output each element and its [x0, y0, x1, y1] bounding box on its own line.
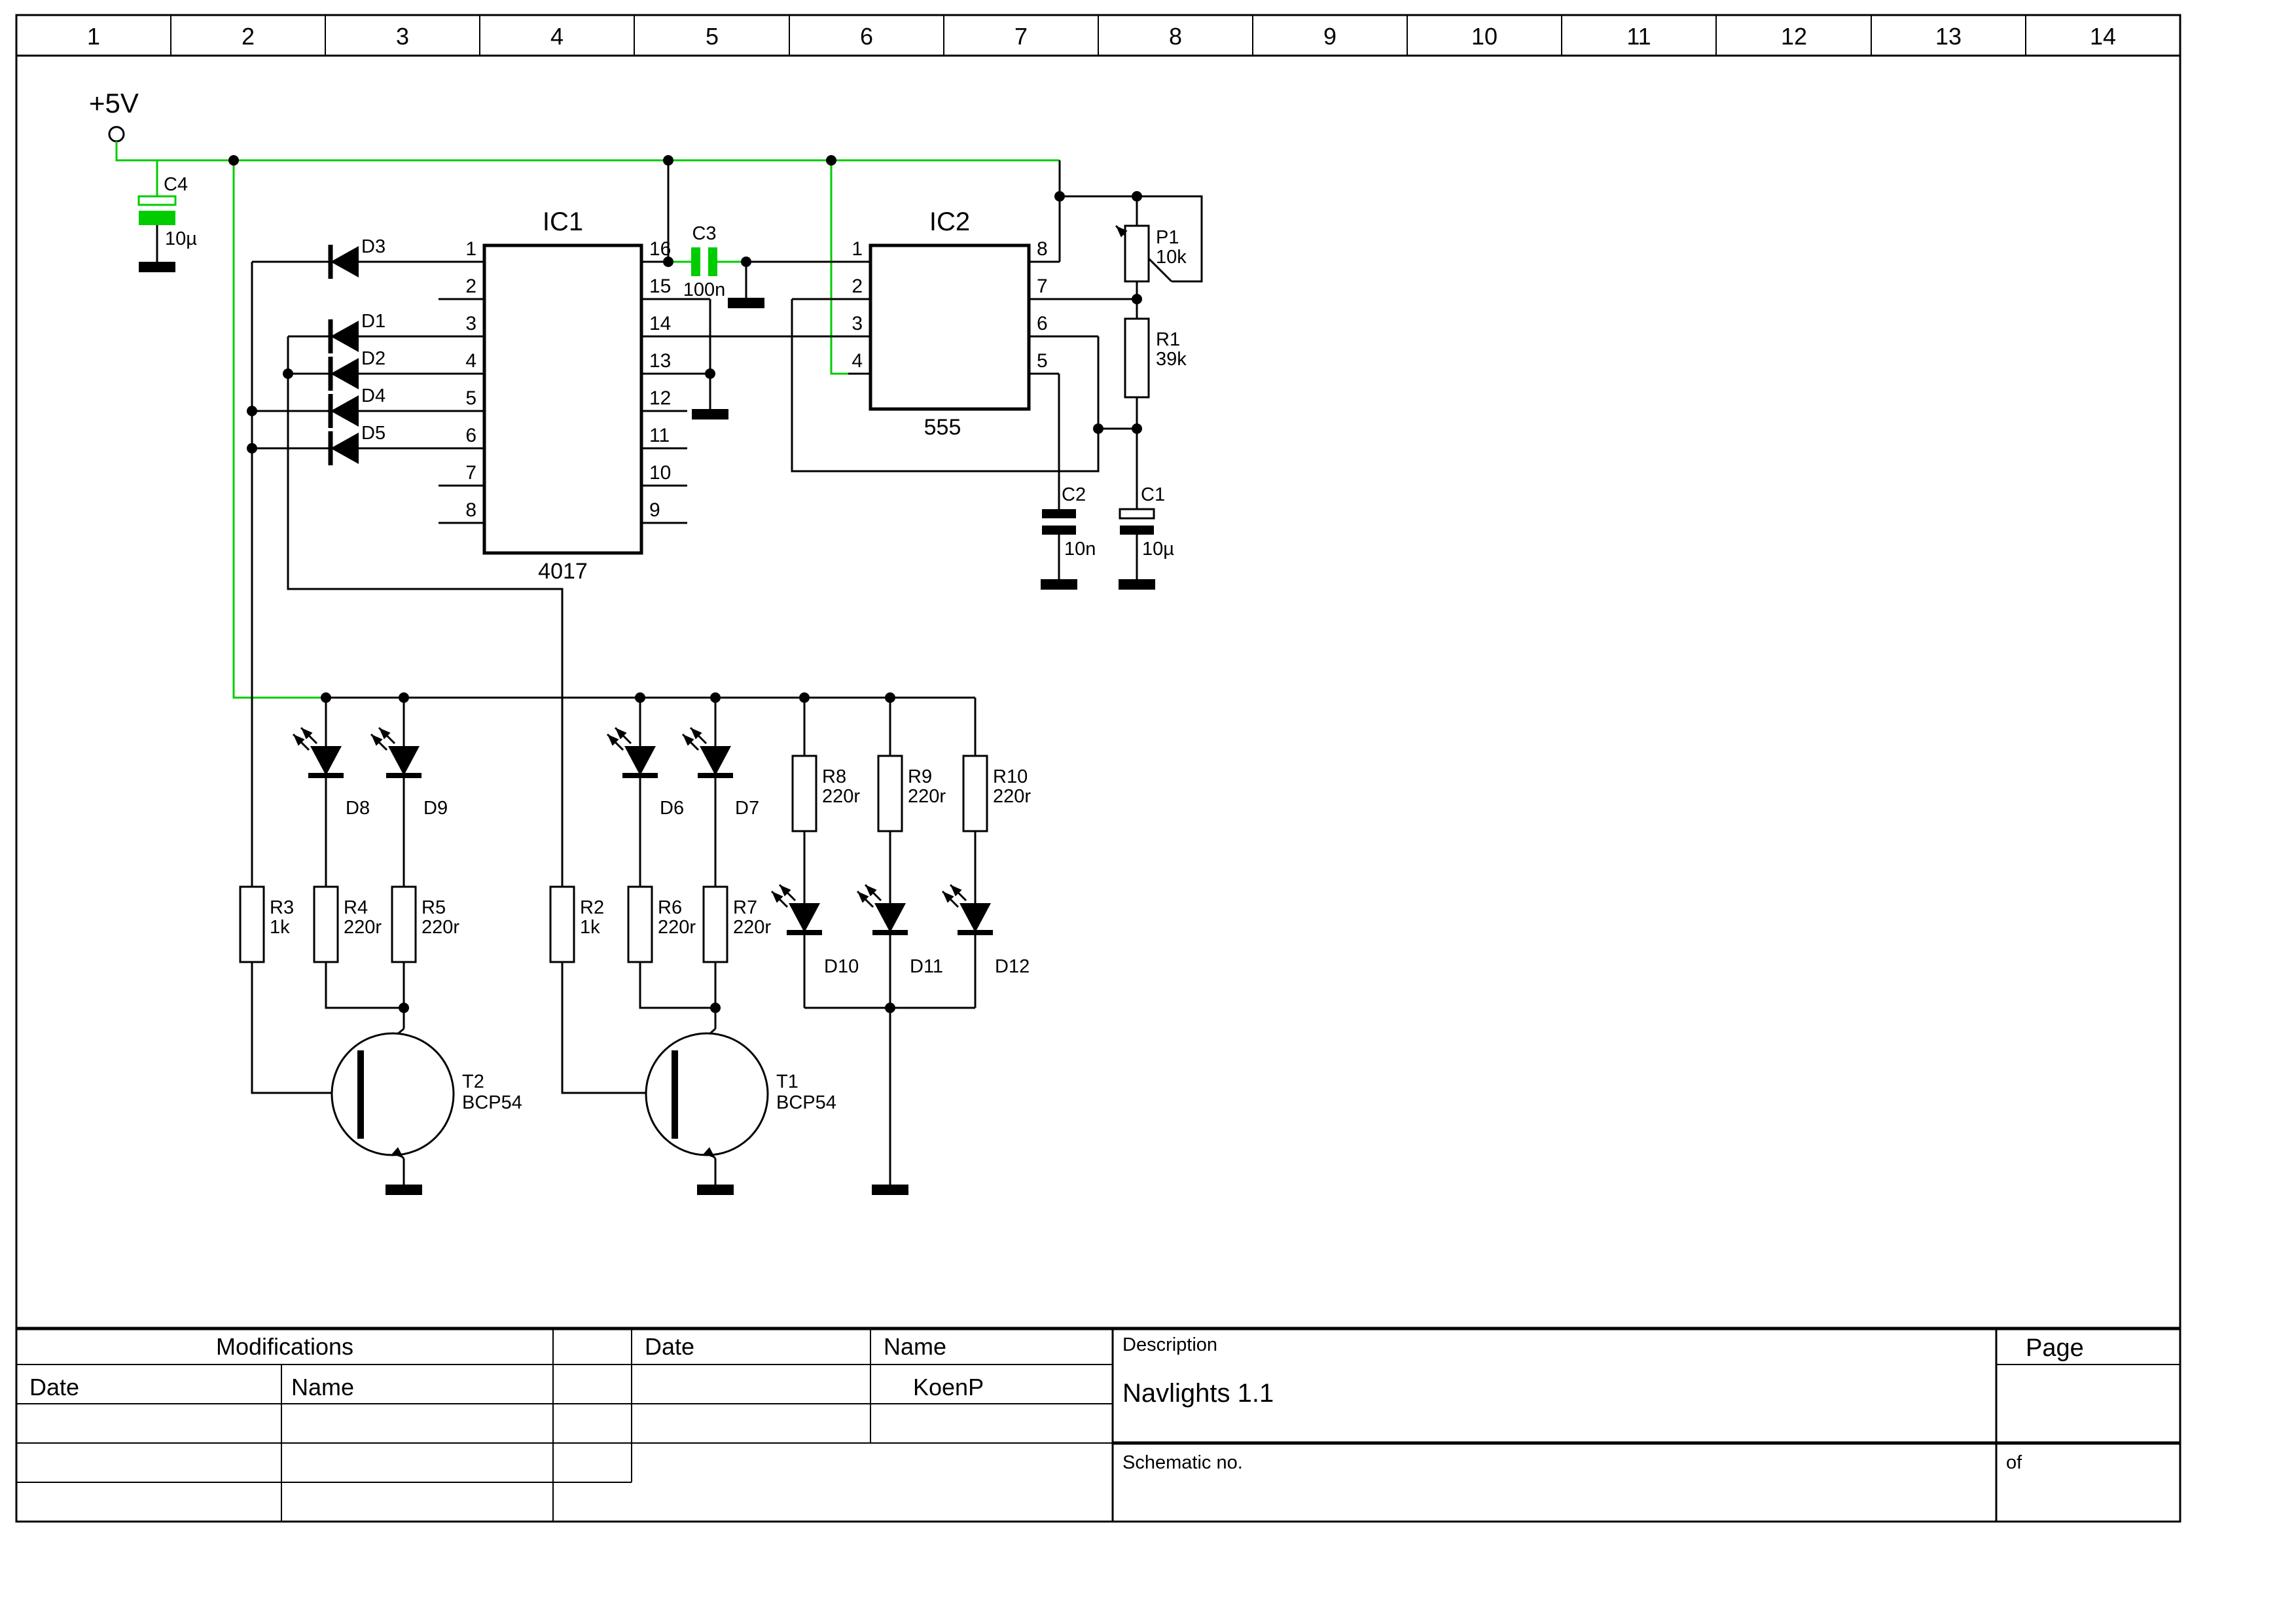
ruler-label: 3 [396, 23, 409, 50]
diode-d4: D4 [331, 385, 386, 427]
ic1-pin: 8 [465, 499, 476, 521]
led-d7: D7 [683, 728, 759, 819]
of-label: of [2006, 1452, 2022, 1473]
name-header: Name [884, 1333, 946, 1360]
transistor-base-bar [357, 1050, 364, 1139]
res-value: 220r [993, 786, 1031, 807]
ruler-label: 4 [550, 23, 564, 50]
cap-value: 100n [683, 279, 726, 300]
cap-ref: C4 [164, 174, 188, 195]
ic1-pin: 7 [465, 462, 476, 484]
res-ref: R2 [580, 897, 604, 918]
res-ref: R5 [422, 897, 446, 918]
ic2-555: IC2 555 1 2 3 4 8 7 6 5 [852, 207, 1047, 440]
ic2-pin: 1 [852, 238, 863, 260]
date-label: Date [29, 1374, 79, 1400]
transistor-part: BCP54 [462, 1092, 522, 1113]
led-d11: D11 [857, 885, 943, 977]
ground-icon [872, 1185, 908, 1195]
ic2-pin: 3 [852, 313, 863, 334]
res-value: 220r [344, 917, 382, 938]
ic1-pin: 12 [649, 387, 671, 409]
potentiometer-p1: P1 10k [1116, 226, 1187, 281]
ruler-label: 14 [2090, 23, 2116, 50]
ic1-pin: 11 [649, 425, 670, 446]
ruler-label: 11 [1626, 23, 1651, 50]
diode-d3: D3 [331, 236, 386, 279]
ruler-label: 6 [860, 23, 873, 50]
res-ref: R6 [658, 897, 682, 918]
cap-plate [708, 247, 717, 276]
power-terminal: +5V [89, 88, 139, 141]
ruler-label: 7 [1014, 23, 1028, 50]
ic1-body [484, 245, 641, 553]
modifications-header: Modifications [216, 1333, 353, 1360]
cap-plate [1042, 526, 1076, 535]
cap-plate [691, 247, 700, 276]
ic1-pin: 14 [649, 313, 671, 334]
res-ref: R10 [993, 766, 1028, 787]
ic1-pin: 4 [465, 350, 476, 372]
led-d10: D10 [772, 885, 859, 977]
cap-ref: C2 [1062, 484, 1086, 505]
schematic-title: Navlights 1.1 [1122, 1379, 1274, 1408]
led-d12: D12 [942, 885, 1030, 977]
res-value: 1k [270, 917, 290, 938]
ruler-label: 13 [1935, 23, 1962, 50]
column-ruler: 1 2 3 4 5 6 7 8 9 10 11 12 13 14 [87, 15, 2116, 56]
transistor-ref: T2 [462, 1071, 484, 1092]
res-value: 39k [1156, 349, 1187, 370]
res-value: 220r [658, 917, 696, 938]
ic2-pin: 5 [1037, 350, 1048, 372]
pot-ref: P1 [1156, 227, 1179, 248]
cap-plate-pos [1120, 509, 1154, 518]
res-value: 220r [422, 917, 459, 938]
diode-triangle [331, 246, 359, 277]
ground-icon [139, 262, 175, 272]
ic1-pin: 1 [465, 238, 476, 260]
led-label: D12 [995, 956, 1030, 977]
res-value: 220r [733, 917, 771, 938]
diode-label: D3 [361, 236, 386, 257]
led-label: D10 [824, 956, 859, 977]
capacitor-c2: C2 10n [1042, 484, 1096, 560]
pot-body [1125, 226, 1149, 281]
ruler-label: 5 [706, 23, 719, 50]
resistor-r10: R10 220r [963, 756, 1031, 831]
ic2-part: 555 [924, 415, 961, 440]
led-label: D11 [910, 956, 943, 977]
ic1-pin: 2 [465, 276, 476, 297]
cap-plate [1042, 509, 1076, 518]
led-d8: D8 [293, 728, 370, 819]
ic2-ref: IC2 [929, 207, 970, 236]
transistor-part: BCP54 [776, 1092, 836, 1113]
res-ref: R4 [344, 897, 368, 918]
cap-value: 10µ [165, 228, 197, 249]
res-ref: R9 [908, 766, 932, 787]
ground-icon [386, 1185, 422, 1195]
ground-icon [1119, 579, 1155, 590]
capacitor-c4: C4 10µ [139, 174, 197, 249]
author-name: KoenP [913, 1374, 984, 1400]
resistor-r7: R7 220r [704, 887, 771, 962]
ic2-pin: 2 [852, 276, 863, 297]
resistor-r4: R4 220r [314, 887, 382, 962]
date-header: Date [645, 1333, 694, 1360]
transistor-circle [646, 1033, 768, 1155]
ic1-pin: 5 [465, 387, 476, 409]
resistor-r5: R5 220r [392, 887, 459, 962]
transistor-base-bar [672, 1050, 678, 1139]
ic1-pin: 9 [649, 499, 660, 521]
power-label: +5V [89, 88, 139, 118]
res-value: 220r [822, 786, 860, 807]
led-label: D7 [735, 798, 759, 819]
ic1-pin: 3 [465, 313, 476, 334]
ic2-body [870, 245, 1029, 409]
ruler-label: 12 [1781, 23, 1807, 50]
diode-label: D2 [361, 348, 386, 369]
resistor-r1: R1 39k [1125, 319, 1187, 397]
transistor-circle [332, 1033, 454, 1155]
ground-icon [1041, 579, 1077, 590]
pot-value: 10k [1156, 247, 1187, 268]
ic1-part: 4017 [538, 559, 588, 584]
resistor-r3: R3 1k [240, 887, 294, 962]
ic2-pin: 7 [1037, 276, 1048, 297]
ground-icon [728, 298, 764, 308]
ground-icon [692, 409, 728, 419]
description-label: Description [1122, 1334, 1217, 1355]
ground-icon [697, 1185, 734, 1195]
res-ref: R7 [733, 897, 757, 918]
title-block: Modifications Date Name Date Name KoenP … [16, 1329, 2180, 1522]
led-d6: D6 [607, 728, 684, 819]
led-label: D6 [660, 798, 684, 819]
cap-value: 10n [1064, 539, 1096, 560]
ic1-pin: 6 [465, 425, 476, 446]
schematic-no-label: Schematic no. [1122, 1452, 1243, 1473]
diode-d1: D1 [331, 311, 386, 352]
res-ref: R3 [270, 897, 294, 918]
diode-label: D5 [361, 423, 386, 444]
diode-d2: D2 [331, 348, 386, 389]
ruler-label: 10 [1471, 23, 1498, 50]
resistor-r9: R9 220r [878, 756, 946, 831]
diode-label: D4 [361, 385, 386, 406]
resistor-r8: R8 220r [793, 756, 860, 831]
sheet-frame [16, 15, 2180, 1522]
led-d9: D9 [371, 728, 448, 819]
cap-plate-pos [139, 196, 175, 205]
ic2-pin: 6 [1037, 313, 1048, 334]
cap-ref: C3 [692, 223, 716, 244]
diode-d5: D5 [331, 423, 386, 464]
cap-plate-neg [139, 211, 175, 225]
res-value: 1k [580, 917, 600, 938]
ic1-pin: 16 [649, 238, 671, 260]
resistor-r6: R6 220r [628, 887, 696, 962]
ic2-pin: 8 [1037, 238, 1048, 260]
transistor-t2: T2 BCP54 [332, 1033, 522, 1158]
cap-value: 10µ [1142, 539, 1174, 560]
ic1-ref: IC1 [543, 207, 583, 236]
ic2-pin: 4 [852, 350, 863, 372]
schematic-sheet: 1 2 3 4 5 6 7 8 9 10 11 12 13 14 +5V [0, 0, 2296, 1623]
ic1-4017: IC1 4017 1 2 3 4 5 6 7 8 16 15 14 13 12 … [465, 207, 671, 584]
capacitor-c1: C1 10µ [1120, 484, 1174, 560]
transistor-t1: T1 BCP54 [646, 1033, 836, 1158]
ruler-label: 1 [87, 23, 100, 50]
name-label: Name [291, 1374, 354, 1400]
diode-label: D1 [361, 311, 386, 332]
terminal-circle-icon [109, 127, 124, 141]
transistor-ref: T1 [776, 1071, 798, 1092]
cap-ref: C1 [1141, 484, 1165, 505]
ruler-label: 2 [242, 23, 255, 50]
page-label: Page [2026, 1334, 2084, 1362]
ic1-pin: 15 [649, 276, 671, 297]
ic1-pin: 13 [649, 350, 671, 372]
ruler-label: 9 [1323, 23, 1336, 50]
res-ref: R1 [1156, 329, 1180, 350]
cap-plate-neg [1120, 526, 1154, 535]
led-label: D9 [423, 798, 448, 819]
ic1-pin: 10 [649, 462, 671, 484]
res-ref: R8 [822, 766, 846, 787]
res-value: 220r [908, 786, 946, 807]
ruler-label: 8 [1169, 23, 1182, 50]
resistor-r2: R2 1k [550, 887, 604, 962]
led-label: D8 [346, 798, 370, 819]
